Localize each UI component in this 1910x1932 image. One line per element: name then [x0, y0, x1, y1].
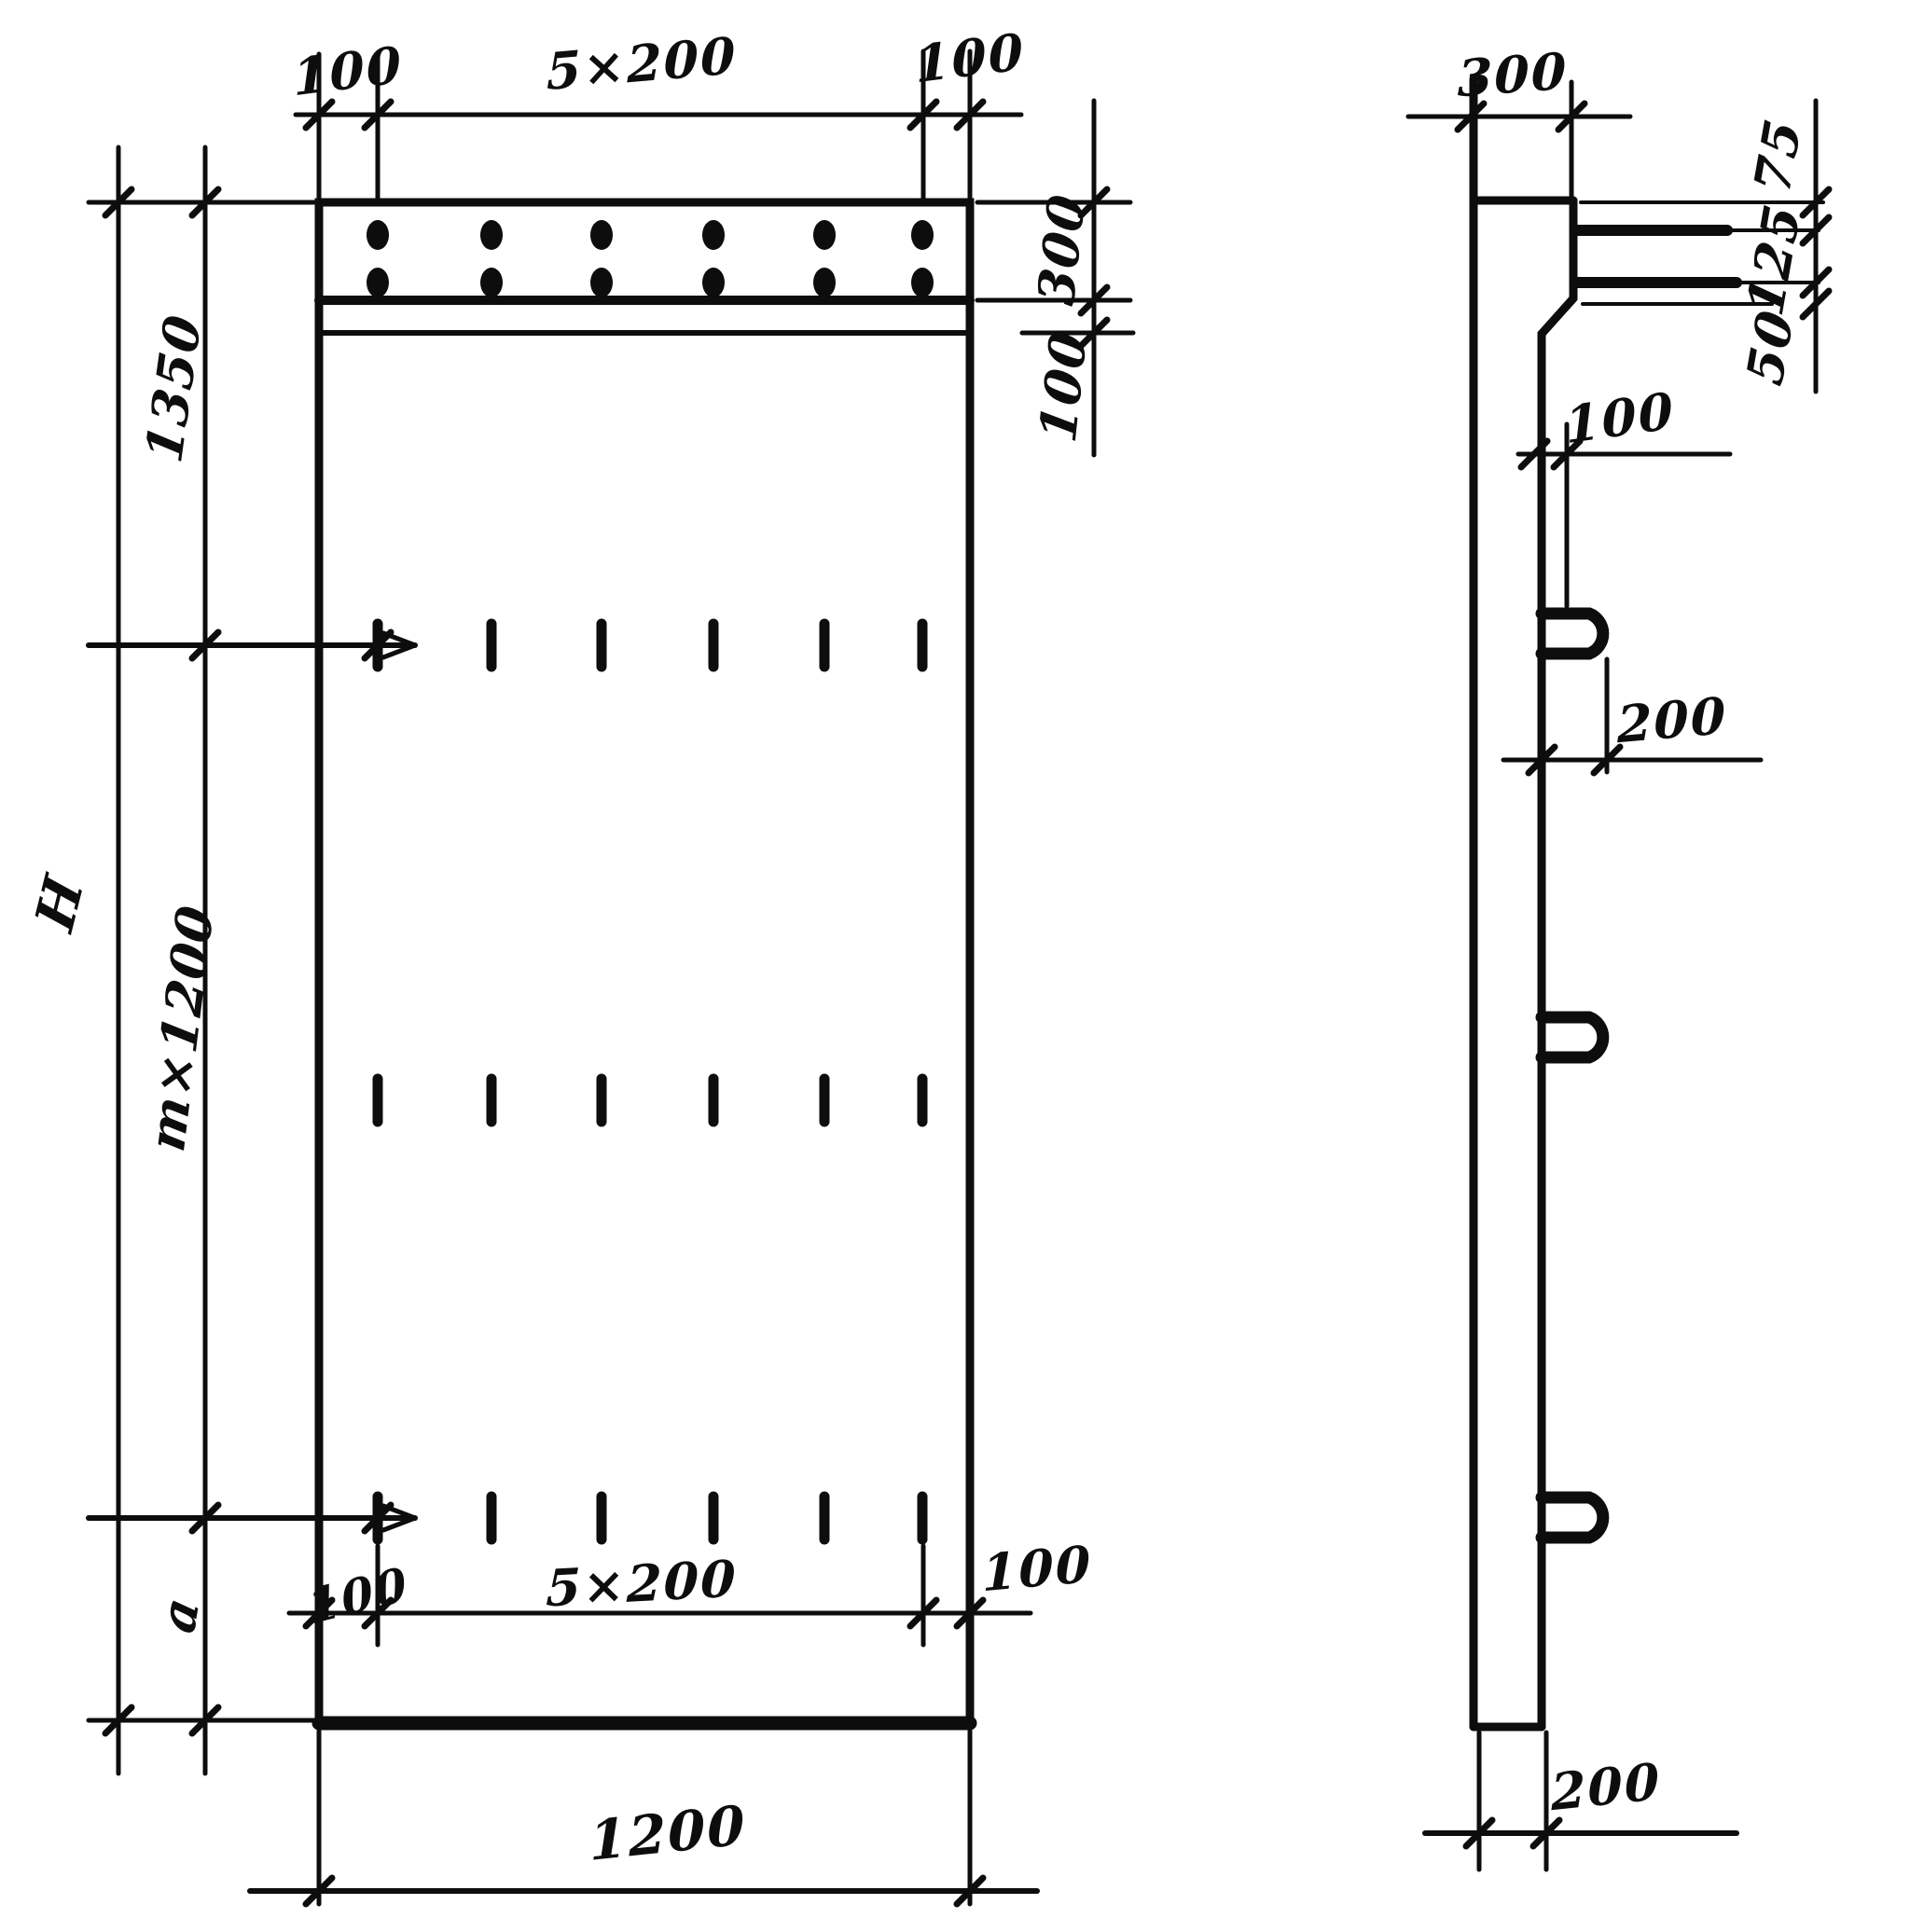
dim-side-loop-length: 200: [1616, 685, 1727, 754]
lifting-loop-upper: [1542, 614, 1603, 654]
drawing-sheet: 100 5×200 100 300 100 1350 H m×1200 a 10…: [0, 0, 1910, 1932]
lifting-loop-lower: [1542, 1497, 1603, 1538]
drawing-linework: [0, 0, 1910, 1932]
dash-row-upper: [378, 624, 922, 667]
dim-front-band-height: 300: [1026, 188, 1097, 309]
dim-side-top-thickness: 300: [1458, 41, 1568, 108]
front-panel-outline: [319, 202, 970, 1723]
side-face-offset-dimension: [1518, 424, 1730, 606]
dim-side-dowel-bottom-offset: 50: [1735, 303, 1806, 390]
anchor-dots: [367, 220, 934, 297]
dim-front-strip-height: 100: [1028, 325, 1099, 446]
front-view: [89, 51, 1133, 1904]
dash-row-middle: [378, 1079, 922, 1122]
dim-front-bottom-spacing: 5×200: [546, 1549, 738, 1619]
dash-row-lower: [378, 1497, 922, 1539]
front-left-dimensions: [89, 147, 415, 1773]
dim-front-bottom-right-margin: 100: [981, 1534, 1092, 1603]
dim-side-dowel-top-offset: 75: [1742, 112, 1813, 199]
dim-side-bottom-thickness: 200: [1550, 1751, 1662, 1823]
lifting-loop-middle: [1542, 1017, 1603, 1057]
